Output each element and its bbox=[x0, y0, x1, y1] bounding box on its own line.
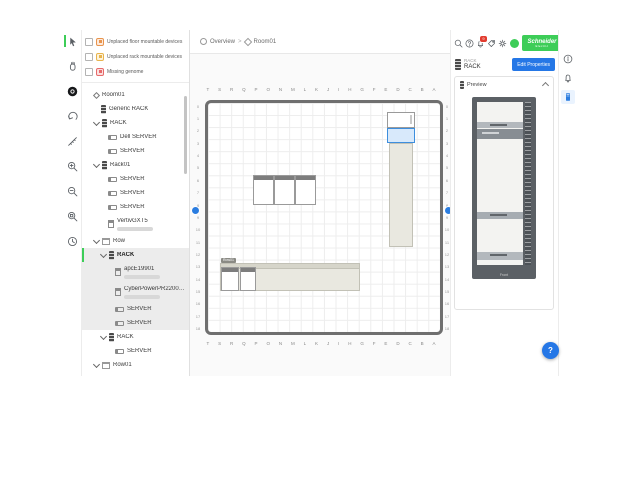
tree-item-server[interactable]: SERVER bbox=[82, 144, 189, 158]
checkbox[interactable] bbox=[85, 68, 93, 76]
left-toolbar bbox=[64, 30, 82, 376]
tree-item-rack[interactable]: RACK bbox=[82, 330, 189, 344]
server-icon bbox=[115, 349, 124, 354]
room-icon bbox=[243, 37, 251, 45]
tree-item-label: CyberPowerPR2200R… bbox=[124, 286, 186, 293]
row-label: 7 bbox=[446, 190, 448, 195]
zoom-fit-tool-icon[interactable] bbox=[66, 209, 80, 223]
measure-tool-icon[interactable] bbox=[66, 134, 80, 148]
tree-item-label: SERVER bbox=[127, 348, 152, 355]
row-label: 14 bbox=[196, 277, 200, 282]
zoom-out-tool-icon[interactable] bbox=[66, 184, 80, 198]
column-labels-bottom: TSRQPONMLKJIHGFEDCBA bbox=[202, 341, 440, 346]
wall-marker-left[interactable] bbox=[192, 207, 199, 214]
column-label: E bbox=[384, 341, 387, 346]
row-label: 2 bbox=[197, 128, 199, 133]
tree-item-label: apcE19901 bbox=[124, 266, 160, 273]
tree-item-label: RACK bbox=[117, 252, 134, 259]
unplaced-devices-list: Unplaced floor mountable devicesUnplaced… bbox=[82, 30, 189, 83]
column-label: G bbox=[360, 341, 364, 346]
unplaced-item[interactable]: Unplaced floor mountable devices bbox=[82, 34, 189, 49]
logo-line2: Electric bbox=[535, 45, 548, 48]
rack-icon bbox=[101, 105, 106, 114]
row-labels-right: 0123456789101112131415161718 bbox=[443, 100, 450, 335]
rack-interior bbox=[477, 102, 523, 265]
row-label: 15 bbox=[196, 289, 200, 294]
row-label: 17 bbox=[445, 314, 449, 319]
tree-item-label: SERVER bbox=[120, 176, 145, 183]
unplaced-item[interactable]: Unplaced rack mountable devices bbox=[82, 49, 189, 64]
tree-item-server[interactable]: SERVER bbox=[82, 316, 189, 330]
column-label: R bbox=[230, 341, 233, 346]
rack-icon-small bbox=[460, 81, 464, 89]
location-tree: Room01Generic RACKRACKDell SERVERSERVERR… bbox=[82, 83, 189, 372]
column-label: M bbox=[291, 341, 295, 346]
row-label: 17 bbox=[196, 314, 200, 319]
row-label: 16 bbox=[196, 301, 200, 306]
device-label-chip bbox=[490, 214, 507, 216]
row-label: 6 bbox=[197, 178, 199, 183]
column-label: A bbox=[433, 341, 436, 346]
column-label: C bbox=[408, 87, 411, 92]
server-icon bbox=[108, 149, 117, 154]
right-toolbar bbox=[558, 30, 576, 376]
preview-device bbox=[477, 122, 523, 128]
column-label: F bbox=[373, 341, 376, 346]
alarm-icon[interactable] bbox=[561, 71, 575, 85]
tree-item-label: SERVER bbox=[120, 204, 145, 211]
row-label: 1 bbox=[446, 116, 448, 121]
chevron-down-icon[interactable] bbox=[100, 250, 107, 257]
missing-genome-icon bbox=[96, 68, 104, 76]
column-label: Q bbox=[242, 341, 246, 346]
schneider-logo[interactable]: Schneider Electric bbox=[522, 35, 562, 51]
rack-icon[interactable] bbox=[561, 90, 575, 104]
rack-icon bbox=[109, 333, 114, 342]
server-icon bbox=[115, 307, 124, 312]
search-icon[interactable] bbox=[453, 37, 464, 50]
rack-icon bbox=[102, 161, 107, 170]
tree-item-label: RACK bbox=[110, 120, 127, 127]
column-label: H bbox=[348, 87, 351, 92]
breadcrumb: Overview > Room01 bbox=[190, 30, 450, 54]
tree-item-room01[interactable]: Room01 bbox=[82, 88, 189, 102]
column-label: S bbox=[218, 341, 221, 346]
row-label: 12 bbox=[445, 252, 449, 257]
tree-item-sublabel bbox=[124, 295, 160, 299]
tree-item-server[interactable]: SERVER bbox=[82, 172, 189, 186]
floor-device-icon bbox=[96, 38, 104, 46]
tree-item-sublabel bbox=[124, 275, 160, 279]
column-label: S bbox=[218, 87, 221, 92]
row-label: 7 bbox=[197, 190, 199, 195]
rack-icon bbox=[102, 119, 107, 128]
info-icon[interactable] bbox=[561, 52, 575, 66]
app-window: Unplaced floor mountable devicesUnplaced… bbox=[64, 30, 576, 376]
row-label: 9 bbox=[197, 215, 199, 220]
tree-item-server[interactable]: SERVER bbox=[82, 344, 189, 358]
row-label: 13 bbox=[196, 264, 200, 269]
column-label: L bbox=[304, 87, 307, 92]
floor-object-rack-mid-2[interactable] bbox=[274, 175, 295, 205]
select-tool-icon[interactable] bbox=[66, 34, 80, 48]
column-label: P bbox=[255, 341, 258, 346]
tree-item-label: Generic RACK bbox=[109, 106, 148, 113]
rack-front-label: Front bbox=[472, 273, 536, 277]
column-label: I bbox=[338, 87, 339, 92]
column-label: D bbox=[396, 87, 399, 92]
column-label: N bbox=[279, 87, 282, 92]
row-label: 16 bbox=[445, 301, 449, 306]
column-label: O bbox=[266, 87, 270, 92]
chevron-down-icon[interactable] bbox=[100, 332, 107, 339]
chevron-down-icon[interactable] bbox=[93, 118, 100, 125]
column-label: H bbox=[348, 341, 351, 346]
column-label: A bbox=[433, 87, 436, 92]
breadcrumb-separator: > bbox=[238, 39, 242, 45]
tree-item-label: SERVER bbox=[127, 306, 152, 313]
column-label: C bbox=[408, 341, 411, 346]
row-label: 13 bbox=[445, 264, 449, 269]
breadcrumb-current: Room01 bbox=[254, 39, 277, 45]
preview-title: Preview bbox=[467, 82, 487, 88]
floor-object-row-vertical[interactable] bbox=[389, 143, 413, 247]
server-icon bbox=[108, 177, 117, 182]
column-label: K bbox=[315, 87, 318, 92]
row-label: 15 bbox=[445, 289, 449, 294]
history-tool-icon[interactable] bbox=[66, 234, 80, 248]
row-label: 12 bbox=[196, 252, 200, 257]
row-label-tag: Row01 bbox=[221, 258, 236, 263]
rack-front-preview: Front bbox=[472, 97, 536, 279]
tree-item-rack[interactable]: RACK bbox=[82, 116, 189, 130]
server-icon bbox=[108, 191, 117, 196]
device-icon bbox=[108, 220, 114, 228]
device-label-chip bbox=[482, 132, 499, 134]
chevron-down-icon[interactable] bbox=[93, 236, 100, 243]
tree-item-label: Room01 bbox=[102, 92, 125, 99]
column-label: Q bbox=[242, 87, 246, 92]
selection-header: RACK RACK Edit Properties bbox=[451, 51, 558, 77]
tree-item-server[interactable]: SERVER bbox=[82, 302, 189, 316]
unplaced-item-label: Missing genome bbox=[107, 69, 143, 75]
row-label: 6 bbox=[446, 178, 448, 183]
floor-object-rack-mid-1[interactable] bbox=[253, 175, 274, 205]
tree-item-server[interactable]: SERVER bbox=[82, 186, 189, 200]
top-action-bar: 9 Schneider Electric bbox=[451, 30, 558, 51]
column-label: B bbox=[421, 341, 424, 346]
column-label: T bbox=[206, 341, 209, 346]
tree-item-label: SERVER bbox=[120, 148, 145, 155]
floor-object-rack-bottom-1[interactable] bbox=[221, 267, 239, 291]
row-label: 3 bbox=[446, 141, 448, 146]
rack-u-rail bbox=[525, 102, 531, 265]
zoom-in-tool-icon[interactable] bbox=[66, 159, 80, 173]
tag-icon[interactable] bbox=[486, 37, 497, 50]
column-label: I bbox=[338, 341, 339, 346]
row-label: 5 bbox=[446, 165, 448, 170]
help-icon[interactable] bbox=[464, 37, 475, 50]
tree-item-label: VertivGXT5 bbox=[117, 218, 153, 225]
tree-item-server[interactable]: SERVER bbox=[82, 200, 189, 214]
chevron-down-icon[interactable] bbox=[93, 160, 100, 167]
collapse-chevron-icon[interactable] bbox=[542, 81, 549, 88]
breadcrumb-overview[interactable]: Overview bbox=[210, 39, 235, 45]
row-label: 2 bbox=[446, 128, 448, 133]
tree-item-apce19901[interactable]: apcE19901 bbox=[82, 262, 189, 282]
row-label: 1 bbox=[197, 116, 199, 121]
row-labels-left: 0123456789101112131415161718 bbox=[194, 100, 202, 335]
device-icon bbox=[115, 288, 121, 296]
floor-object-rack-selected[interactable] bbox=[387, 128, 415, 143]
column-label: E bbox=[384, 87, 387, 92]
preview-panel: Preview Front bbox=[454, 76, 554, 310]
tree-scrollbar[interactable] bbox=[184, 96, 187, 174]
row-label: 18 bbox=[445, 326, 449, 331]
server-icon bbox=[108, 135, 117, 140]
user-avatar[interactable] bbox=[510, 39, 519, 48]
floor-object-rack-mid-3[interactable] bbox=[295, 175, 316, 205]
properties-panel: 9 Schneider Electric RACK RACK Edit Prop… bbox=[450, 30, 558, 376]
tree-item-label: Rack01 bbox=[110, 162, 130, 169]
tree-item-label: Dell SERVER bbox=[120, 134, 157, 141]
unplaced-item-label: Unplaced rack mountable devices bbox=[107, 54, 182, 60]
device-label-chip bbox=[490, 254, 507, 256]
tree-item-vertivgxt5[interactable]: VertivGXT5 bbox=[82, 214, 189, 234]
row-label: 5 bbox=[197, 165, 199, 170]
tree-item-generic-rack[interactable]: Generic RACK bbox=[82, 102, 189, 116]
tree-item-dell-server[interactable]: Dell SERVER bbox=[82, 130, 189, 144]
help-fab[interactable]: ? bbox=[542, 342, 559, 359]
device-label-chip bbox=[490, 124, 507, 126]
row-label: 9 bbox=[446, 215, 448, 220]
row-icon bbox=[102, 362, 110, 369]
tree-item-label: SERVER bbox=[127, 320, 152, 327]
column-label: G bbox=[360, 87, 364, 92]
column-label: R bbox=[230, 87, 233, 92]
server-icon bbox=[115, 321, 124, 326]
tree-item-label: SERVER bbox=[120, 190, 145, 197]
add-device-tool-icon[interactable] bbox=[66, 84, 80, 98]
column-label: F bbox=[373, 87, 376, 92]
floor-object-rack-top[interactable] bbox=[387, 112, 415, 128]
column-label: D bbox=[396, 341, 399, 346]
row-label: 0 bbox=[446, 104, 448, 109]
tree-item-row[interactable]: Row bbox=[82, 234, 189, 248]
room-icon bbox=[93, 91, 100, 98]
pan-tool-icon[interactable] bbox=[66, 59, 80, 73]
row-icon bbox=[102, 238, 110, 245]
unplaced-item-label: Unplaced floor mountable devices bbox=[107, 39, 182, 45]
column-label: T bbox=[206, 87, 209, 92]
preview-device bbox=[477, 212, 523, 219]
row-label: 11 bbox=[196, 240, 200, 245]
column-label: J bbox=[327, 341, 329, 346]
tree-item-label: Row bbox=[113, 238, 125, 245]
rack-device-icon bbox=[96, 53, 104, 61]
rack-label-mark bbox=[410, 115, 412, 124]
selection-name: RACK bbox=[464, 64, 481, 72]
row-label: 4 bbox=[197, 153, 199, 158]
rack-icon bbox=[109, 251, 114, 260]
settings-icon[interactable] bbox=[497, 37, 508, 50]
server-icon bbox=[108, 205, 117, 210]
row-label: 10 bbox=[445, 227, 449, 232]
floor-canvas[interactable]: TSRQPONMLKJIHGFEDCBA TSRQPONMLKJIHGFEDCB… bbox=[190, 54, 450, 376]
chevron-down-icon[interactable] bbox=[93, 360, 100, 367]
canvas-column: Overview > Room01 TSRQPONMLKJIHGFEDCBA T… bbox=[190, 30, 450, 376]
preview-device bbox=[477, 129, 523, 139]
column-label: L bbox=[304, 341, 307, 346]
tree-item-rack01[interactable]: Rack01 bbox=[82, 158, 189, 172]
checkbox[interactable] bbox=[85, 38, 93, 46]
checkbox[interactable] bbox=[85, 53, 93, 61]
column-label: M bbox=[291, 87, 295, 92]
tree-item-rack[interactable]: RACK bbox=[82, 248, 189, 262]
edit-properties-button[interactable]: Edit Properties bbox=[512, 58, 555, 71]
row-label: 4 bbox=[446, 153, 448, 158]
floor-grid[interactable]: Row01 bbox=[205, 100, 443, 335]
tree-item-row01[interactable]: Row01 bbox=[82, 358, 189, 372]
row-label: 14 bbox=[445, 277, 449, 282]
tree-item-label: Row01 bbox=[113, 362, 132, 369]
tree-item-cyberpowerpr2200r-[interactable]: CyberPowerPR2200R… bbox=[82, 282, 189, 302]
column-label: P bbox=[255, 87, 258, 92]
column-label: B bbox=[421, 87, 424, 92]
column-label: K bbox=[315, 341, 318, 346]
column-label: N bbox=[279, 341, 282, 346]
notifications-icon[interactable]: 9 bbox=[475, 37, 486, 50]
undo-tool-icon[interactable] bbox=[66, 109, 80, 123]
row-label: 10 bbox=[196, 227, 200, 232]
unplaced-item[interactable]: Missing genome bbox=[82, 64, 189, 79]
rack-icon bbox=[455, 59, 461, 70]
column-label: O bbox=[266, 341, 270, 346]
overview-icon bbox=[200, 38, 207, 45]
preview-device bbox=[477, 252, 523, 260]
row-label: 0 bbox=[197, 104, 199, 109]
row-label: 18 bbox=[196, 326, 200, 331]
tree-item-label: RACK bbox=[117, 334, 134, 341]
column-labels-top: TSRQPONMLKJIHGFEDCBA bbox=[202, 87, 440, 92]
column-label: J bbox=[327, 87, 329, 92]
floor-object-rack-bottom-2[interactable] bbox=[240, 267, 256, 291]
device-tree-panel: Unplaced floor mountable devicesUnplaced… bbox=[82, 30, 190, 376]
tree-item-sublabel bbox=[117, 227, 153, 231]
device-icon bbox=[115, 268, 121, 276]
row-label: 11 bbox=[445, 240, 449, 245]
row-label: 3 bbox=[197, 141, 199, 146]
